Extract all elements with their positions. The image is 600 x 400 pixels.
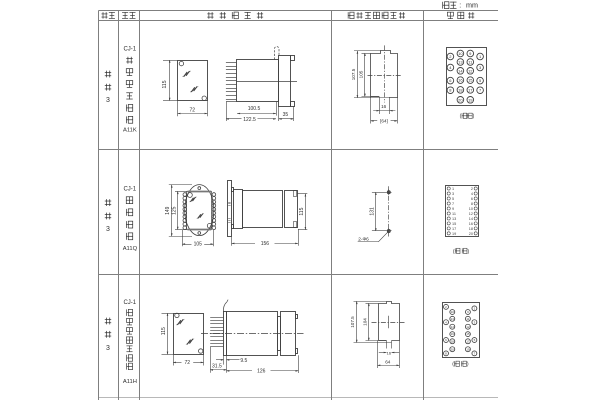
svg-text:16: 16 — [451, 332, 455, 336]
svg-text:15: 15 — [452, 222, 456, 226]
svg-text:1: 1 — [452, 187, 454, 191]
svg-text:CJ-1: CJ-1 — [123, 300, 136, 306]
svg-text:17: 17 — [452, 227, 456, 231]
svg-text:105: 105 — [194, 242, 203, 248]
svg-text:9: 9 — [452, 207, 454, 211]
svg-text:100.5: 100.5 — [248, 106, 261, 112]
svg-text:12: 12 — [468, 68, 473, 73]
svg-text:31.5: 31.5 — [212, 363, 222, 369]
svg-text:[64]: [64] — [380, 119, 388, 124]
svg-text:20: 20 — [469, 232, 473, 236]
svg-text:126: 126 — [257, 369, 266, 375]
svg-text:149: 149 — [165, 206, 171, 215]
svg-text:A11K: A11K — [123, 127, 137, 133]
svg-text:14: 14 — [469, 217, 473, 221]
svg-text:16: 16 — [381, 104, 387, 109]
svg-text::: : — [459, 3, 461, 10]
svg-text:): ) — [467, 362, 469, 368]
svg-text:): ) — [473, 114, 475, 120]
svg-text:10: 10 — [451, 310, 455, 314]
svg-text:10: 10 — [458, 51, 463, 56]
svg-text:(: ( — [453, 249, 455, 255]
svg-text:2: 2 — [471, 187, 473, 191]
svg-text:125: 125 — [171, 206, 177, 215]
svg-text:19: 19 — [466, 347, 470, 351]
svg-text:CJ-1: CJ-1 — [123, 47, 136, 53]
svg-text:35: 35 — [283, 112, 289, 118]
svg-text:11: 11 — [466, 317, 469, 321]
svg-text:107.5: 107.5 — [350, 316, 355, 328]
svg-text:131: 131 — [369, 207, 375, 216]
svg-text:13: 13 — [451, 317, 455, 321]
svg-text:72: 72 — [190, 108, 196, 114]
svg-text:115: 115 — [299, 207, 305, 215]
svg-text:mm: mm — [466, 1, 478, 10]
svg-text:16: 16 — [387, 351, 392, 356]
svg-text:7: 7 — [452, 202, 454, 206]
svg-text:20: 20 — [458, 97, 463, 102]
svg-text:12: 12 — [466, 325, 470, 329]
svg-text:18: 18 — [469, 227, 473, 231]
svg-text:16: 16 — [458, 78, 463, 83]
svg-text:6: 6 — [471, 197, 473, 201]
svg-text:10: 10 — [469, 207, 473, 211]
svg-text:3: 3 — [452, 192, 454, 196]
svg-text:13: 13 — [452, 217, 456, 221]
svg-text:17: 17 — [466, 339, 470, 343]
svg-text:18: 18 — [451, 339, 455, 343]
svg-text:12: 12 — [469, 212, 473, 216]
svg-text:107.5: 107.5 — [351, 68, 356, 80]
svg-text:20: 20 — [451, 347, 455, 351]
svg-text:(: ( — [452, 362, 454, 368]
svg-text:CJ-1: CJ-1 — [123, 187, 136, 193]
svg-text:18: 18 — [458, 87, 463, 92]
svg-text:104: 104 — [362, 318, 367, 326]
svg-text:6: 6 — [366, 237, 369, 243]
svg-text:15: 15 — [468, 78, 473, 83]
svg-text:72: 72 — [185, 360, 191, 366]
svg-text:105: 105 — [358, 70, 363, 78]
svg-text:(: ( — [460, 114, 462, 120]
svg-text:115: 115 — [162, 80, 168, 88]
svg-text:11: 11 — [452, 212, 456, 216]
svg-text:4: 4 — [471, 192, 473, 196]
svg-text:13: 13 — [458, 59, 463, 64]
svg-text:8: 8 — [471, 202, 473, 206]
svg-text:9.5: 9.5 — [240, 358, 247, 364]
svg-text:14: 14 — [451, 325, 455, 329]
svg-text:64: 64 — [385, 359, 391, 364]
svg-text:115: 115 — [161, 327, 167, 335]
svg-text:5: 5 — [452, 197, 454, 201]
svg-text:A11H: A11H — [123, 379, 137, 385]
svg-text:14: 14 — [458, 68, 463, 73]
svg-text:A11Q: A11Q — [123, 246, 138, 252]
svg-text:3: 3 — [106, 345, 110, 352]
svg-text:17: 17 — [468, 87, 473, 92]
svg-text:156: 156 — [261, 241, 270, 247]
svg-text:16: 16 — [469, 222, 473, 226]
svg-text:3: 3 — [106, 226, 110, 233]
svg-text:19: 19 — [452, 232, 456, 236]
svg-text:15: 15 — [466, 332, 470, 336]
svg-text:): ) — [467, 249, 469, 255]
svg-text:19: 19 — [468, 97, 473, 102]
svg-text:3: 3 — [106, 97, 110, 104]
svg-text:122.5: 122.5 — [243, 117, 256, 123]
